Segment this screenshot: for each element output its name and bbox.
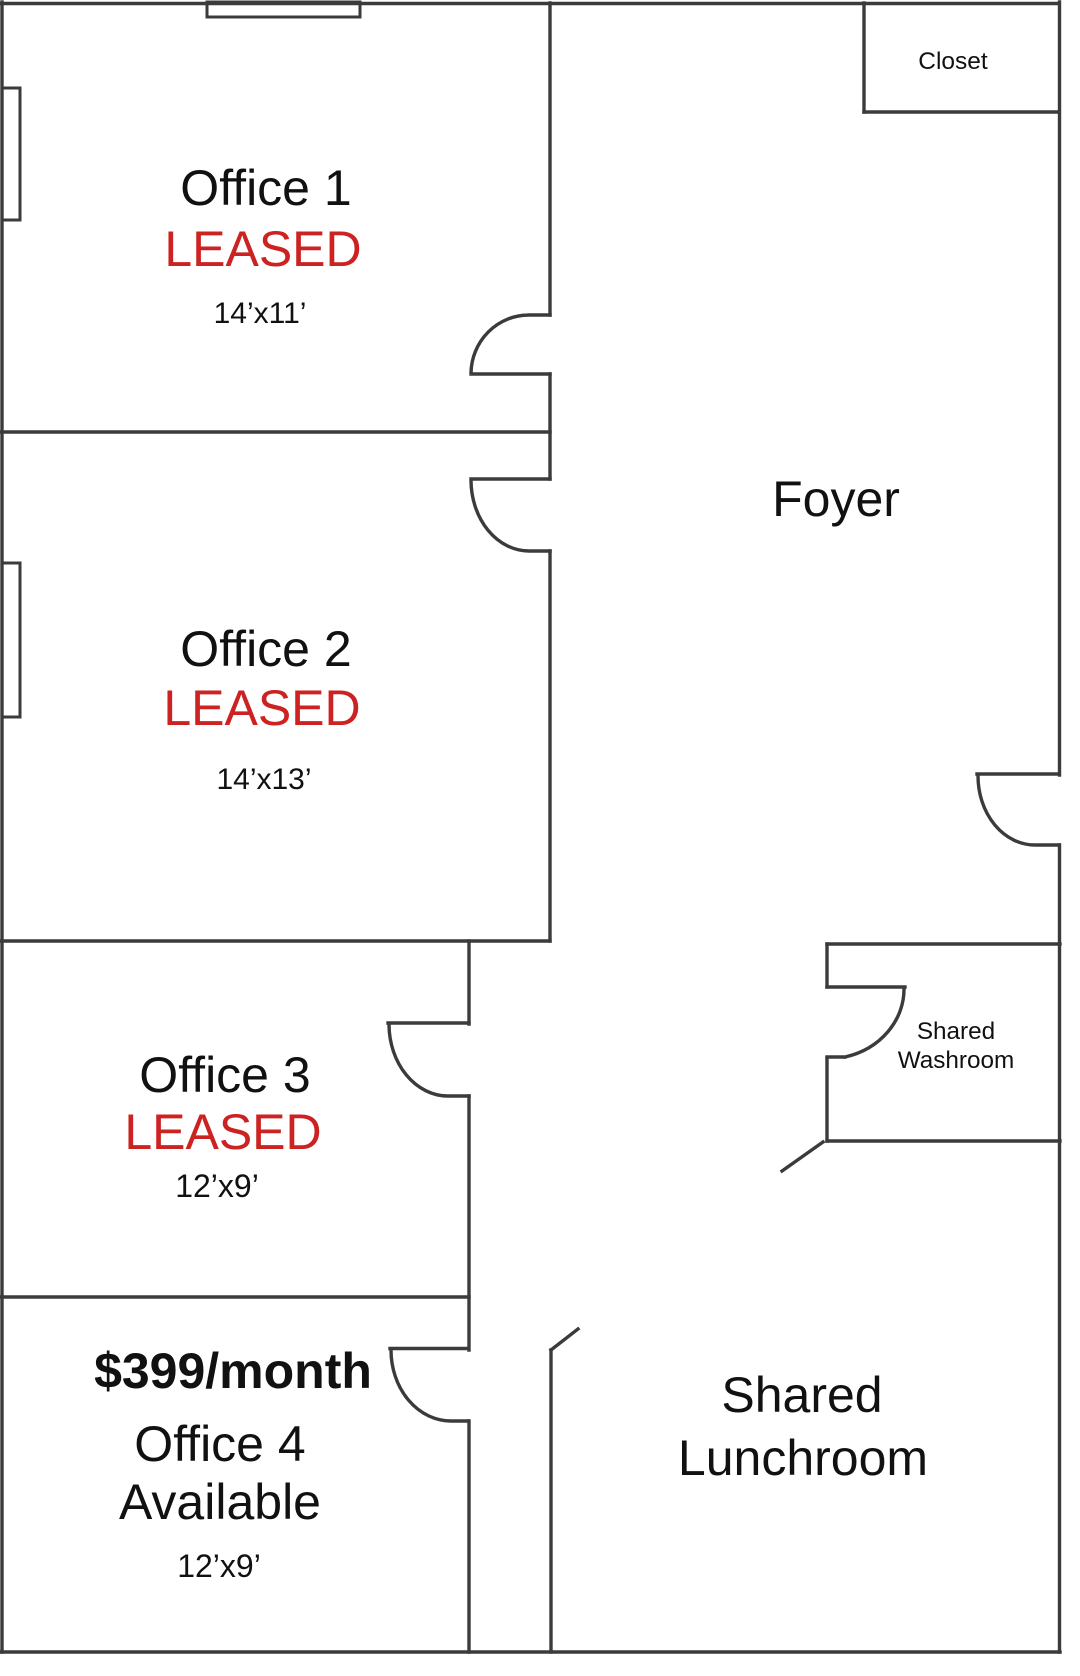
svg-text:Shared: Shared	[917, 1018, 995, 1045]
svg-text:12’x9’: 12’x9’	[175, 1168, 259, 1204]
svg-text:LEASED: LEASED	[164, 221, 361, 277]
svg-text:$399/month: $399/month	[94, 1343, 372, 1399]
svg-text:Office 1: Office 1	[180, 160, 351, 216]
svg-text:14’x13’: 14’x13’	[216, 763, 311, 796]
svg-text:LEASED: LEASED	[163, 680, 360, 736]
svg-text:14’x11’: 14’x11’	[214, 297, 307, 330]
svg-text:Lunchroom: Lunchroom	[678, 1430, 928, 1486]
svg-text:Foyer: Foyer	[772, 471, 900, 527]
svg-text:Closet: Closet	[918, 48, 988, 75]
svg-text:Available: Available	[119, 1474, 321, 1530]
svg-text:Office 3: Office 3	[139, 1047, 310, 1103]
svg-text:Shared: Shared	[721, 1367, 882, 1423]
svg-text:Washroom: Washroom	[898, 1047, 1015, 1074]
svg-text:LEASED: LEASED	[124, 1104, 321, 1160]
svg-text:Office 2: Office 2	[180, 621, 351, 677]
svg-text:12’x9’: 12’x9’	[177, 1548, 261, 1584]
svg-text:Office 4: Office 4	[134, 1416, 305, 1472]
